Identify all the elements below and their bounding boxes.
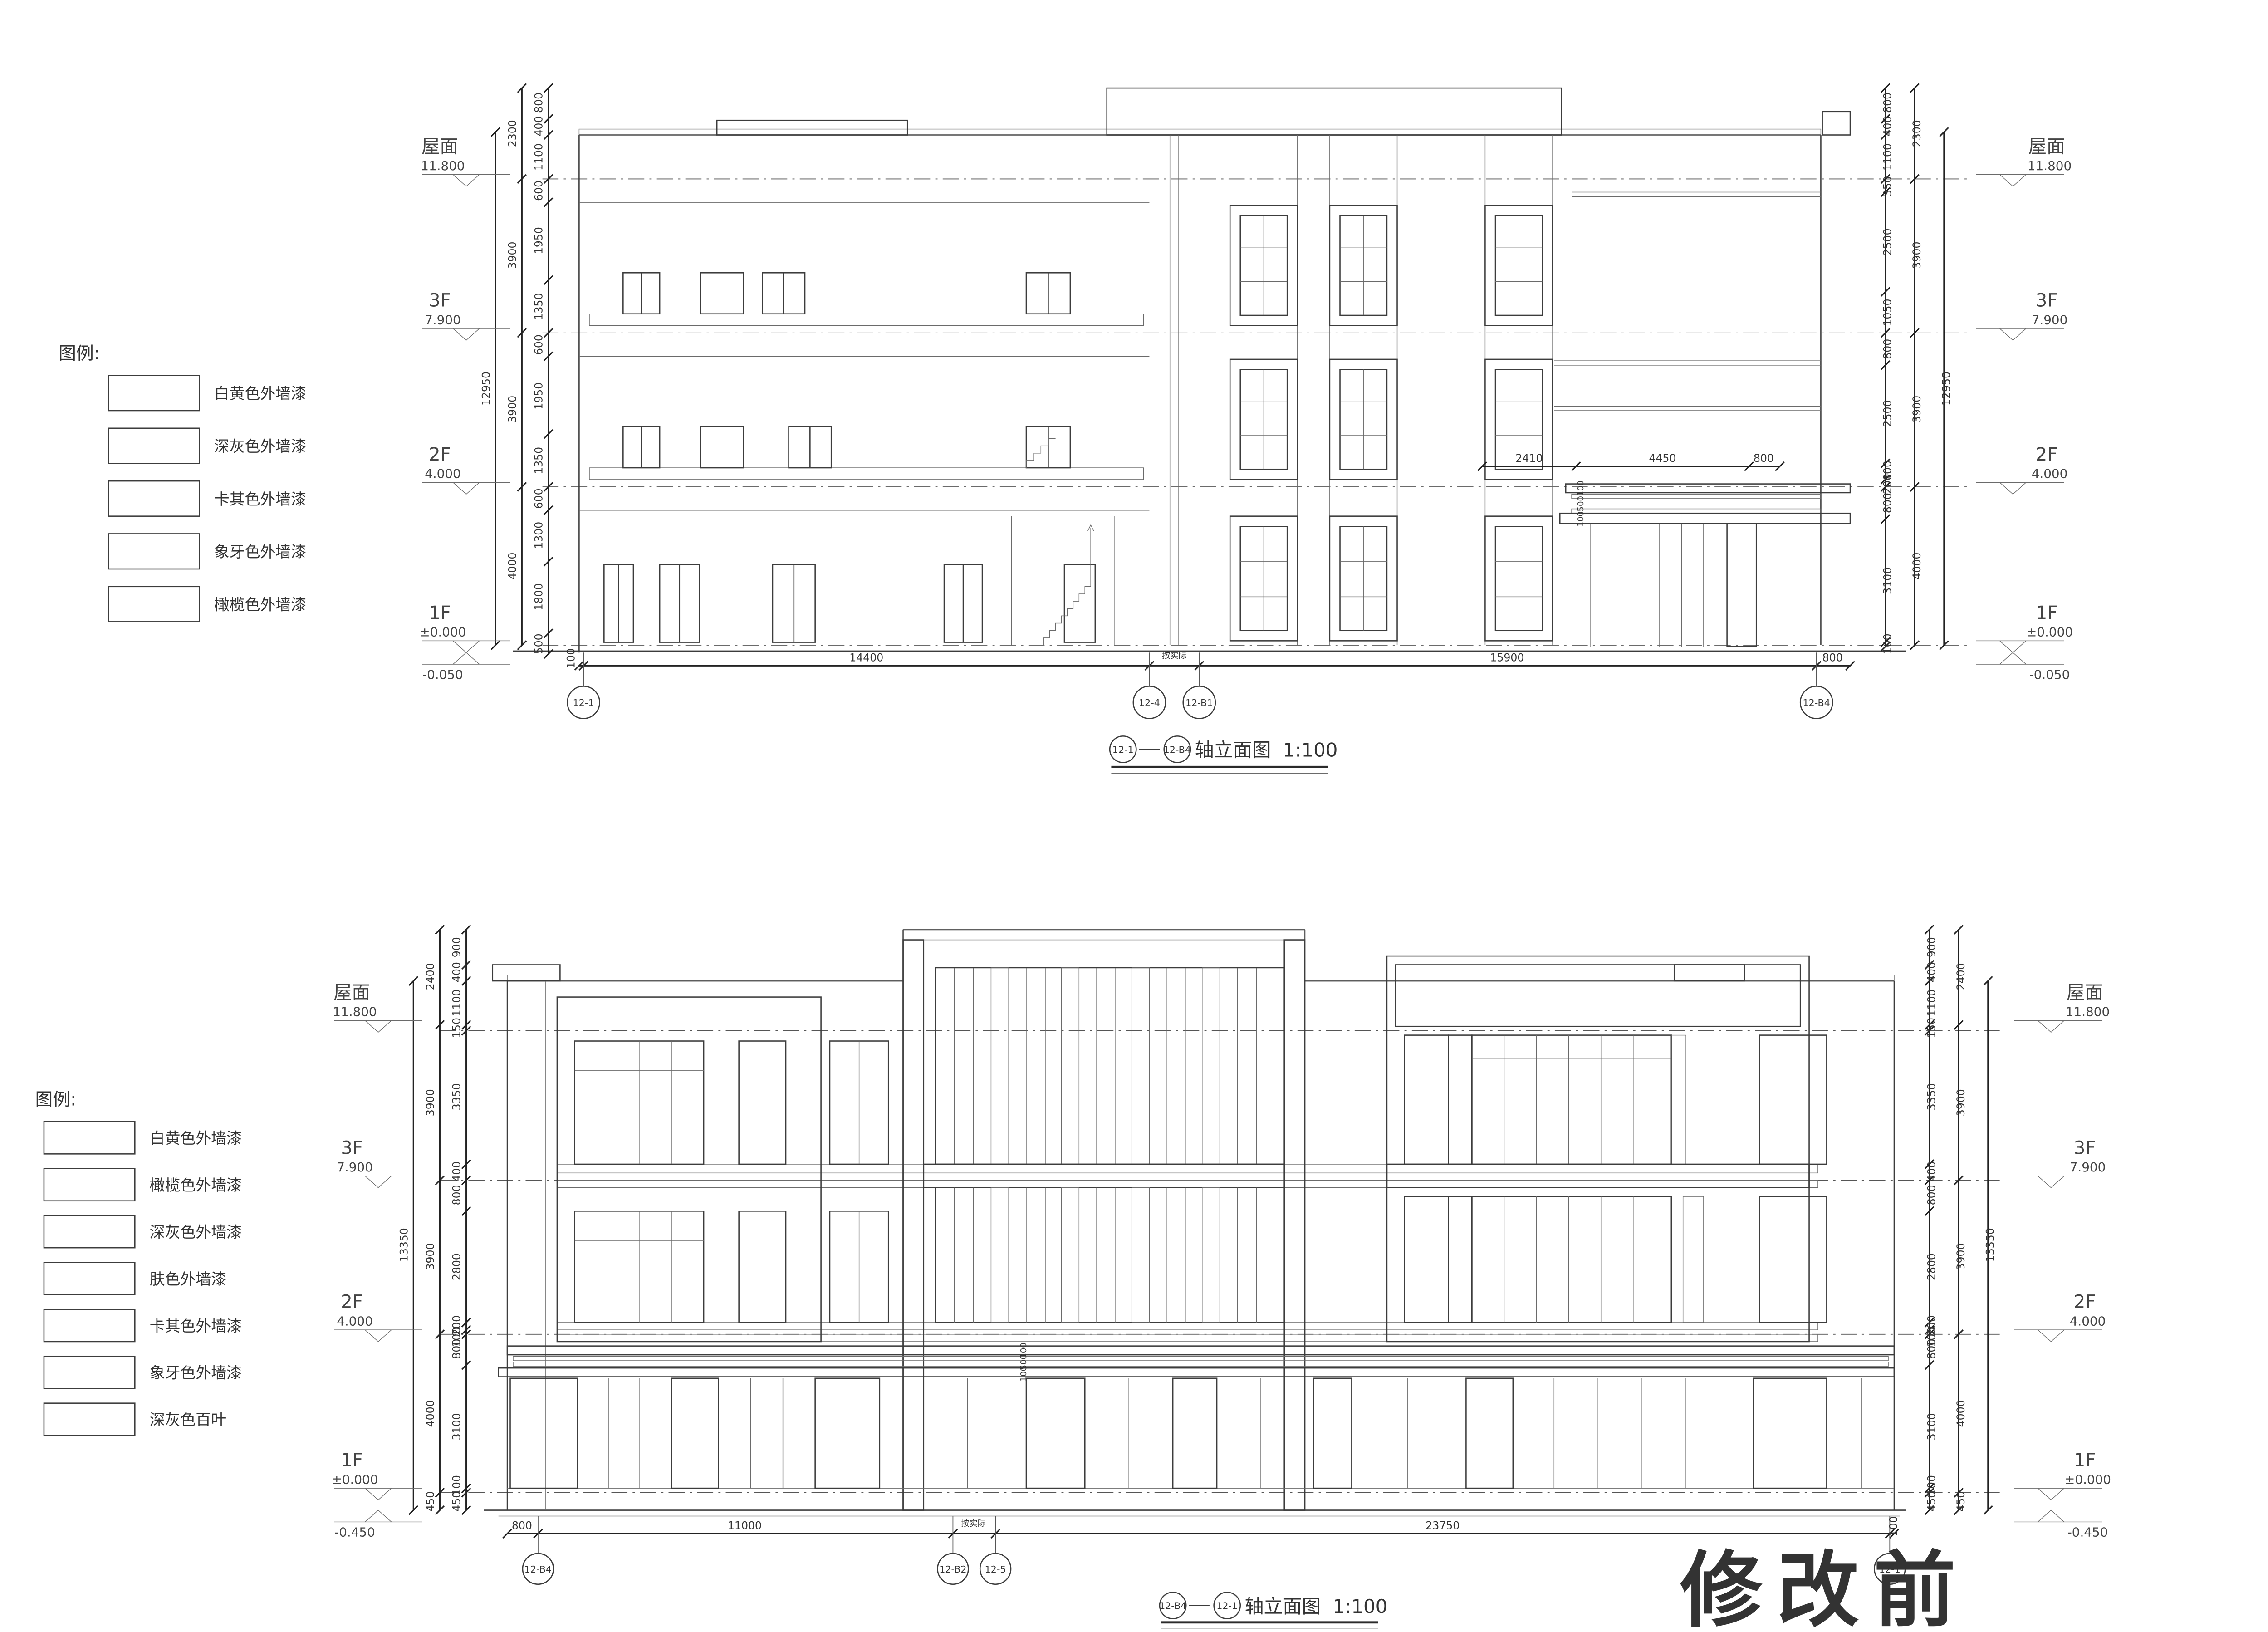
dim: 2800 bbox=[1925, 1253, 1938, 1280]
canopy-bottom-slab bbox=[1560, 513, 1850, 524]
strip-2 bbox=[1330, 206, 1397, 641]
right-wing bbox=[1387, 956, 1827, 1342]
dim: 1800 bbox=[533, 583, 545, 610]
floor-label: 屋面 bbox=[2067, 982, 2103, 1003]
dim: 400 bbox=[1925, 962, 1938, 982]
level-marker bbox=[422, 482, 510, 494]
axis-label: 12-B4 bbox=[1164, 745, 1191, 755]
right-section: 2410 4450 800 100 500 100 bbox=[1478, 192, 1850, 647]
drawing-title: 轴立面图 bbox=[1195, 739, 1271, 761]
legend-label: 象牙色外墙漆 bbox=[150, 1364, 242, 1382]
dim: 12950 bbox=[480, 372, 492, 406]
legend-label: 深灰色外墙漆 bbox=[214, 437, 306, 455]
floor-label: 3F bbox=[2074, 1137, 2096, 1158]
level-marker bbox=[1976, 175, 2064, 186]
legend-label: 白黄色外墙漆 bbox=[150, 1130, 242, 1147]
dim: 1100 bbox=[451, 989, 463, 1016]
dim: 400 bbox=[451, 1162, 463, 1182]
legend-title: 图例: bbox=[59, 343, 100, 364]
legend-swatch-dots bbox=[44, 1122, 135, 1154]
dim: 1100 bbox=[533, 143, 545, 171]
floor-value: 11.800 bbox=[421, 158, 465, 173]
dim: 1100 bbox=[1925, 989, 1938, 1016]
legend-label: 橄榄色外墙漆 bbox=[150, 1176, 242, 1194]
dim-note: 按实际 bbox=[1162, 651, 1186, 661]
strip-1 bbox=[1230, 206, 1298, 641]
dim: 900 bbox=[451, 937, 463, 957]
legend-swatch-blank bbox=[44, 1356, 135, 1388]
dim-note: 按实际 bbox=[961, 1519, 986, 1529]
louver-strip bbox=[1026, 1378, 1085, 1488]
dim: 500 bbox=[1576, 496, 1586, 512]
dim: 450 bbox=[451, 1491, 463, 1512]
panel-3f bbox=[575, 1041, 786, 1164]
dim: 600 bbox=[533, 488, 545, 509]
legend-label: 深灰色外墙漆 bbox=[150, 1224, 242, 1241]
dim: 800 bbox=[1925, 1185, 1938, 1205]
dim: 350 bbox=[1881, 176, 1894, 196]
floor-label: 屋面 bbox=[421, 136, 458, 157]
windows-2f bbox=[623, 427, 1070, 468]
dim: 13350 bbox=[397, 1228, 410, 1262]
dim: 100 bbox=[1576, 511, 1586, 527]
dim: 800 bbox=[1754, 452, 1774, 465]
dim: 3900 bbox=[1910, 396, 1923, 423]
dim: 4000 bbox=[1954, 1400, 1967, 1427]
dim: 2500 bbox=[1881, 400, 1894, 427]
hatched-top-block bbox=[1396, 965, 1800, 1026]
axis-label: 12-5 bbox=[985, 1564, 1006, 1575]
legend-swatch-diag bbox=[108, 587, 199, 622]
roof-stub-right bbox=[1822, 112, 1850, 135]
panel-2f bbox=[575, 1211, 786, 1323]
floor-value: -0.450 bbox=[334, 1525, 375, 1540]
dim: 11000 bbox=[728, 1519, 762, 1532]
tower-2f-glazing bbox=[936, 1188, 1284, 1323]
dim: 600 bbox=[533, 181, 545, 201]
dims-bottom: 100 14400 按实际 15900 800 12-1 12-4 12-B1 … bbox=[565, 648, 1855, 719]
level-marker-base bbox=[2014, 1488, 2102, 1522]
level-marker-base bbox=[1976, 641, 2064, 664]
floor-markers-left: 屋面 11.800 3F 7.900 2F 4.000 1F ±0.000 -0… bbox=[419, 136, 510, 682]
level-marker bbox=[334, 1020, 422, 1032]
legend-label: 橄榄色外墙漆 bbox=[214, 596, 306, 613]
dim: 1950 bbox=[533, 382, 545, 410]
dim: 2410 bbox=[1515, 452, 1543, 465]
stairs bbox=[1012, 438, 1114, 645]
panel-3f bbox=[1405, 1035, 1827, 1164]
building-outline bbox=[579, 135, 1821, 653]
dim: 3900 bbox=[424, 1243, 436, 1270]
windows-1f bbox=[604, 564, 1095, 642]
legend-swatch-blank bbox=[108, 534, 199, 569]
legend-swatch-hex bbox=[44, 1309, 135, 1342]
datum-lines bbox=[440, 1031, 2001, 1493]
tower-outline bbox=[903, 930, 1305, 1510]
dim: 2300 bbox=[506, 120, 519, 147]
storefront-canopy: 100 500 100 bbox=[499, 1343, 1894, 1382]
dim: 13350 bbox=[1984, 1228, 1997, 1262]
dim: 400 bbox=[1881, 116, 1894, 137]
axis-label: 12-4 bbox=[1139, 697, 1160, 708]
sill-band-3f bbox=[589, 314, 1143, 326]
dim: 800 bbox=[512, 1519, 532, 1532]
dim: 3350 bbox=[451, 1083, 463, 1110]
dim: 23750 bbox=[1425, 1519, 1460, 1532]
floor-value: 4.000 bbox=[425, 466, 461, 481]
dim: 800 bbox=[1881, 493, 1894, 513]
dim: 450 bbox=[1925, 1491, 1938, 1512]
left-wing bbox=[579, 202, 1149, 645]
axis-label: 12-B4 bbox=[1803, 697, 1830, 708]
pier-stipple bbox=[1173, 1378, 1217, 1488]
legend-label: 肤色外墙漆 bbox=[150, 1270, 227, 1288]
floor-value: 7.900 bbox=[2032, 312, 2068, 327]
dim: 900 bbox=[1925, 937, 1938, 957]
legend-top: 图例: 白黄色外墙漆 深灰色外墙漆 卡其色外墙漆 象牙色外墙漆 橄榄色外墙漆 bbox=[59, 343, 306, 622]
floor-label: 2F bbox=[2036, 444, 2058, 465]
panel-frame bbox=[1387, 956, 1809, 1342]
dim: 1100 bbox=[1881, 143, 1894, 171]
dim: 1050 bbox=[1881, 299, 1894, 326]
dim: 4000 bbox=[506, 553, 519, 580]
canopy-bottom-slab bbox=[499, 1368, 1894, 1377]
drawing-sheet: 图例: 白黄色外墙漆 深灰色外墙漆 卡其色外墙漆 象牙色外墙漆 橄榄色外墙漆 图… bbox=[0, 0, 2268, 1632]
legend-swatch-stipple bbox=[108, 428, 199, 464]
legend-swatch-louver bbox=[44, 1403, 135, 1436]
floor-label: 1F bbox=[2074, 1450, 2096, 1471]
level-marker bbox=[2014, 1176, 2102, 1188]
dim: 450 bbox=[424, 1491, 436, 1512]
dim: 100 bbox=[565, 648, 578, 669]
axis-label: 12-1 bbox=[573, 697, 594, 708]
elevation-1: 2410 4450 800 100 500 100 800 400 1100 6… bbox=[419, 83, 2072, 773]
legend-title: 图例: bbox=[35, 1090, 77, 1110]
level-marker-base bbox=[334, 1488, 422, 1522]
dim: 800 bbox=[451, 1339, 463, 1359]
level-marker bbox=[2014, 1330, 2102, 1342]
legend-label: 卡其色外墙漆 bbox=[214, 490, 306, 508]
level-marker bbox=[1976, 482, 2064, 494]
level-marker bbox=[334, 1176, 422, 1188]
dim: 2400 bbox=[424, 963, 436, 990]
pier-stipple bbox=[510, 1378, 578, 1488]
dim: 800 bbox=[1881, 339, 1894, 359]
dim: 400 bbox=[533, 116, 545, 137]
glazing-mullions bbox=[1407, 1378, 1862, 1488]
dim: 12950 bbox=[1940, 372, 1953, 406]
legend-label: 卡其色外墙漆 bbox=[150, 1317, 242, 1335]
dim: 400 bbox=[451, 962, 463, 982]
tower-hatch-strip-right bbox=[1284, 940, 1305, 1510]
dim: 600 bbox=[533, 334, 545, 355]
strip-3 bbox=[1485, 206, 1553, 641]
dim: 4000 bbox=[1910, 553, 1923, 580]
axis-label: 12-B1 bbox=[1185, 697, 1213, 708]
floor-label: 2F bbox=[429, 444, 451, 465]
floor-label: 2F bbox=[2074, 1291, 2096, 1313]
canopy-band-2 bbox=[513, 1362, 1888, 1367]
floor-label: 1F bbox=[341, 1450, 363, 1471]
dim: 3900 bbox=[506, 241, 519, 269]
axis-label: 12-B2 bbox=[939, 1564, 966, 1575]
louver-strip bbox=[1466, 1378, 1513, 1488]
floor-value: 7.900 bbox=[337, 1160, 373, 1175]
floor-label: 3F bbox=[429, 290, 451, 311]
floor-label: 屋面 bbox=[2028, 136, 2065, 157]
drawing-scale: 1:100 bbox=[1332, 1595, 1387, 1617]
revision-stamp: 修改前 bbox=[1680, 1542, 1970, 1632]
dim: 150 bbox=[451, 1018, 463, 1038]
level-marker bbox=[422, 175, 510, 186]
dim: 100 bbox=[1576, 480, 1586, 496]
elevation-2: 100 500 100 bbox=[332, 925, 2111, 1628]
pier-stipple bbox=[815, 1378, 880, 1488]
axis-label: 12-B4 bbox=[1159, 1601, 1186, 1612]
datum-lines bbox=[543, 179, 1972, 645]
dim: 2500 bbox=[1881, 228, 1894, 255]
tower-hatch-strip-left bbox=[903, 940, 924, 1510]
band-2f-b bbox=[557, 1334, 1818, 1342]
floor-label: 3F bbox=[341, 1137, 363, 1158]
dim: 150 bbox=[1925, 1018, 1938, 1038]
dim: 3100 bbox=[1881, 567, 1894, 594]
dim: 100 bbox=[1019, 1366, 1029, 1382]
floor-value: -0.050 bbox=[2029, 667, 2070, 682]
floor-markers-right: 屋面 11.800 3F 7.900 2F 4.000 1F ±0.000 -0… bbox=[2014, 982, 2111, 1540]
parapet-band-right bbox=[1305, 975, 1894, 981]
parapet-cap-right bbox=[1674, 965, 1744, 981]
dim: 800 bbox=[1822, 652, 1843, 664]
dim: 800 bbox=[1925, 1339, 1938, 1359]
dotted-panel bbox=[557, 997, 821, 1342]
band-3f-b bbox=[557, 1181, 1818, 1188]
panel-2f bbox=[1405, 1196, 1827, 1323]
pier-stipple bbox=[1754, 1378, 1827, 1488]
dims-left: 900 400 1100 150 3350 400 800 2800 200 1… bbox=[397, 925, 470, 1514]
dim: 3900 bbox=[506, 396, 519, 423]
floor-value: ±0.000 bbox=[332, 1472, 378, 1487]
floor-label: 3F bbox=[2036, 290, 2058, 311]
storefront-1f bbox=[507, 1378, 1894, 1488]
title-elevation-2: 12-B4 12-1 轴立面图 1:100 bbox=[1159, 1593, 1387, 1628]
legend-label: 深灰色百叶 bbox=[150, 1411, 227, 1429]
dim: 3100 bbox=[451, 1413, 463, 1440]
parapet-cap-left bbox=[493, 965, 560, 981]
legend-swatch-hex bbox=[108, 481, 199, 516]
dim: 800 bbox=[1881, 93, 1894, 113]
dim: 100 bbox=[1887, 1516, 1900, 1537]
dim: 3900 bbox=[424, 1089, 436, 1116]
dim: 3900 bbox=[1954, 1089, 1967, 1116]
level-marker bbox=[1976, 328, 2064, 340]
tower-3f-glazing bbox=[936, 968, 1284, 1164]
floor-markers-right: 屋面 11.800 3F 7.900 2F 4.000 1F ±0.000 -0… bbox=[1976, 136, 2073, 682]
glazing-mullions bbox=[608, 1378, 783, 1488]
dim: 1950 bbox=[533, 227, 545, 254]
window-strips bbox=[1230, 135, 1553, 646]
floor-value: ±0.000 bbox=[419, 625, 466, 640]
canopy-top-slab bbox=[507, 1346, 1894, 1355]
band-hatched bbox=[1387, 1164, 1809, 1188]
pier-stipple bbox=[1727, 524, 1757, 647]
dim: 1350 bbox=[533, 447, 545, 474]
canopy-band-1 bbox=[513, 1356, 1888, 1361]
left-wing bbox=[545, 981, 888, 1510]
floor-value: -0.050 bbox=[422, 667, 463, 682]
dim: 800 bbox=[533, 93, 545, 113]
storefront-mullions bbox=[1591, 524, 1704, 647]
floor-label: 2F bbox=[341, 1291, 363, 1313]
floor-label: 1F bbox=[2036, 602, 2058, 623]
legend-label: 象牙色外墙漆 bbox=[214, 543, 306, 561]
dim: 200 bbox=[1881, 474, 1894, 494]
floor-value: 11.800 bbox=[2028, 158, 2072, 173]
floor-label: 屋面 bbox=[333, 982, 370, 1003]
parapet-band-left bbox=[507, 975, 903, 981]
band-3f-a bbox=[557, 1164, 1818, 1173]
elevation-drawing-canvas: 图例: 白黄色外墙漆 深灰色外墙漆 卡其色外墙漆 象牙色外墙漆 橄榄色外墙漆 图… bbox=[0, 0, 2268, 1632]
dim: 800 bbox=[451, 1185, 463, 1205]
windows-3f bbox=[623, 273, 1070, 314]
axis-label: 12-B4 bbox=[524, 1564, 552, 1575]
dim: 1300 bbox=[533, 522, 545, 549]
dim: 2800 bbox=[451, 1253, 463, 1280]
floor-label: 1F bbox=[429, 602, 451, 623]
sill-band-2f bbox=[589, 468, 1143, 480]
legend-swatch-diag bbox=[44, 1169, 135, 1201]
legend-label: 白黄色外墙漆 bbox=[214, 385, 306, 402]
legend-swatch-stipple bbox=[44, 1215, 135, 1248]
dim: 14400 bbox=[849, 652, 883, 664]
canopy-band-2 bbox=[1572, 509, 1821, 514]
floor-value: 7.900 bbox=[425, 312, 461, 327]
dim: 500 bbox=[533, 633, 545, 654]
center-tower bbox=[903, 930, 1305, 1510]
floor-value: 7.900 bbox=[2070, 1160, 2106, 1175]
band-2f-a bbox=[557, 1323, 1818, 1330]
canopy-top-slab bbox=[1566, 484, 1850, 493]
axis-label: 12-1 bbox=[1216, 1601, 1238, 1612]
drawing-scale: 1:100 bbox=[1283, 739, 1337, 761]
roof-block-hatched bbox=[1107, 88, 1562, 135]
floor-value: 11.800 bbox=[333, 1005, 377, 1019]
legend-swatch-diag-sparse bbox=[44, 1262, 135, 1294]
floor-value: ±0.000 bbox=[2026, 625, 2073, 640]
dim: 4450 bbox=[1649, 452, 1676, 465]
tower-band-hatched bbox=[924, 1164, 1284, 1188]
pier-stipple bbox=[1313, 1378, 1352, 1488]
dim: 2400 bbox=[1954, 963, 1967, 990]
dims-right: 900 400 1100 150 3350 400 800 2800 200 1… bbox=[1925, 925, 1997, 1514]
tower-cap-band bbox=[903, 930, 1305, 940]
legend-bottom: 图例: 白黄色外墙漆 橄榄色外墙漆 深灰色外墙漆 肤色外墙漆 卡其色外墙漆 象牙… bbox=[35, 1090, 242, 1436]
dim: 3350 bbox=[1925, 1083, 1938, 1110]
drawing-title: 轴立面图 bbox=[1244, 1595, 1321, 1617]
dims-right: 800 400 1100 350 2500 1050 800 2500 400 … bbox=[1881, 83, 1953, 654]
floor-value: -0.450 bbox=[2067, 1525, 2108, 1540]
floor-value: 4.000 bbox=[2070, 1313, 2106, 1328]
dim: 4000 bbox=[424, 1400, 436, 1427]
floor-value: ±0.000 bbox=[2064, 1472, 2111, 1487]
dims-left: 800 400 1100 600 1950 1350 600 1950 1350… bbox=[480, 83, 553, 658]
dim: 2300 bbox=[1910, 120, 1923, 147]
dim: 3900 bbox=[1910, 241, 1923, 269]
dim: 1350 bbox=[533, 293, 545, 320]
canopy-band-1 bbox=[1572, 494, 1821, 499]
legend-swatch-dots bbox=[108, 375, 199, 411]
pier-stipple bbox=[671, 1378, 718, 1488]
axis-label: 12-1 bbox=[1112, 745, 1134, 755]
dim: 100 bbox=[1881, 633, 1894, 654]
level-marker bbox=[422, 328, 510, 340]
floor-value: 4.000 bbox=[337, 1313, 373, 1328]
floor-value: 4.000 bbox=[2032, 466, 2068, 481]
dim: 3900 bbox=[1954, 1243, 1967, 1270]
dim: 400 bbox=[1925, 1162, 1938, 1182]
dim: 3100 bbox=[1925, 1413, 1938, 1440]
dim: 15900 bbox=[1490, 652, 1524, 664]
title-elevation-1: 12-1 12-B4 轴立面图 1:100 bbox=[1110, 736, 1337, 773]
floor-value: 11.800 bbox=[2066, 1005, 2110, 1019]
dim: 450 bbox=[1954, 1491, 1967, 1512]
parapet-band bbox=[579, 129, 1821, 135]
level-marker bbox=[334, 1330, 422, 1342]
roof-stub-left bbox=[717, 120, 907, 135]
expansion-joint bbox=[1170, 135, 1179, 646]
level-marker bbox=[2014, 1020, 2102, 1032]
